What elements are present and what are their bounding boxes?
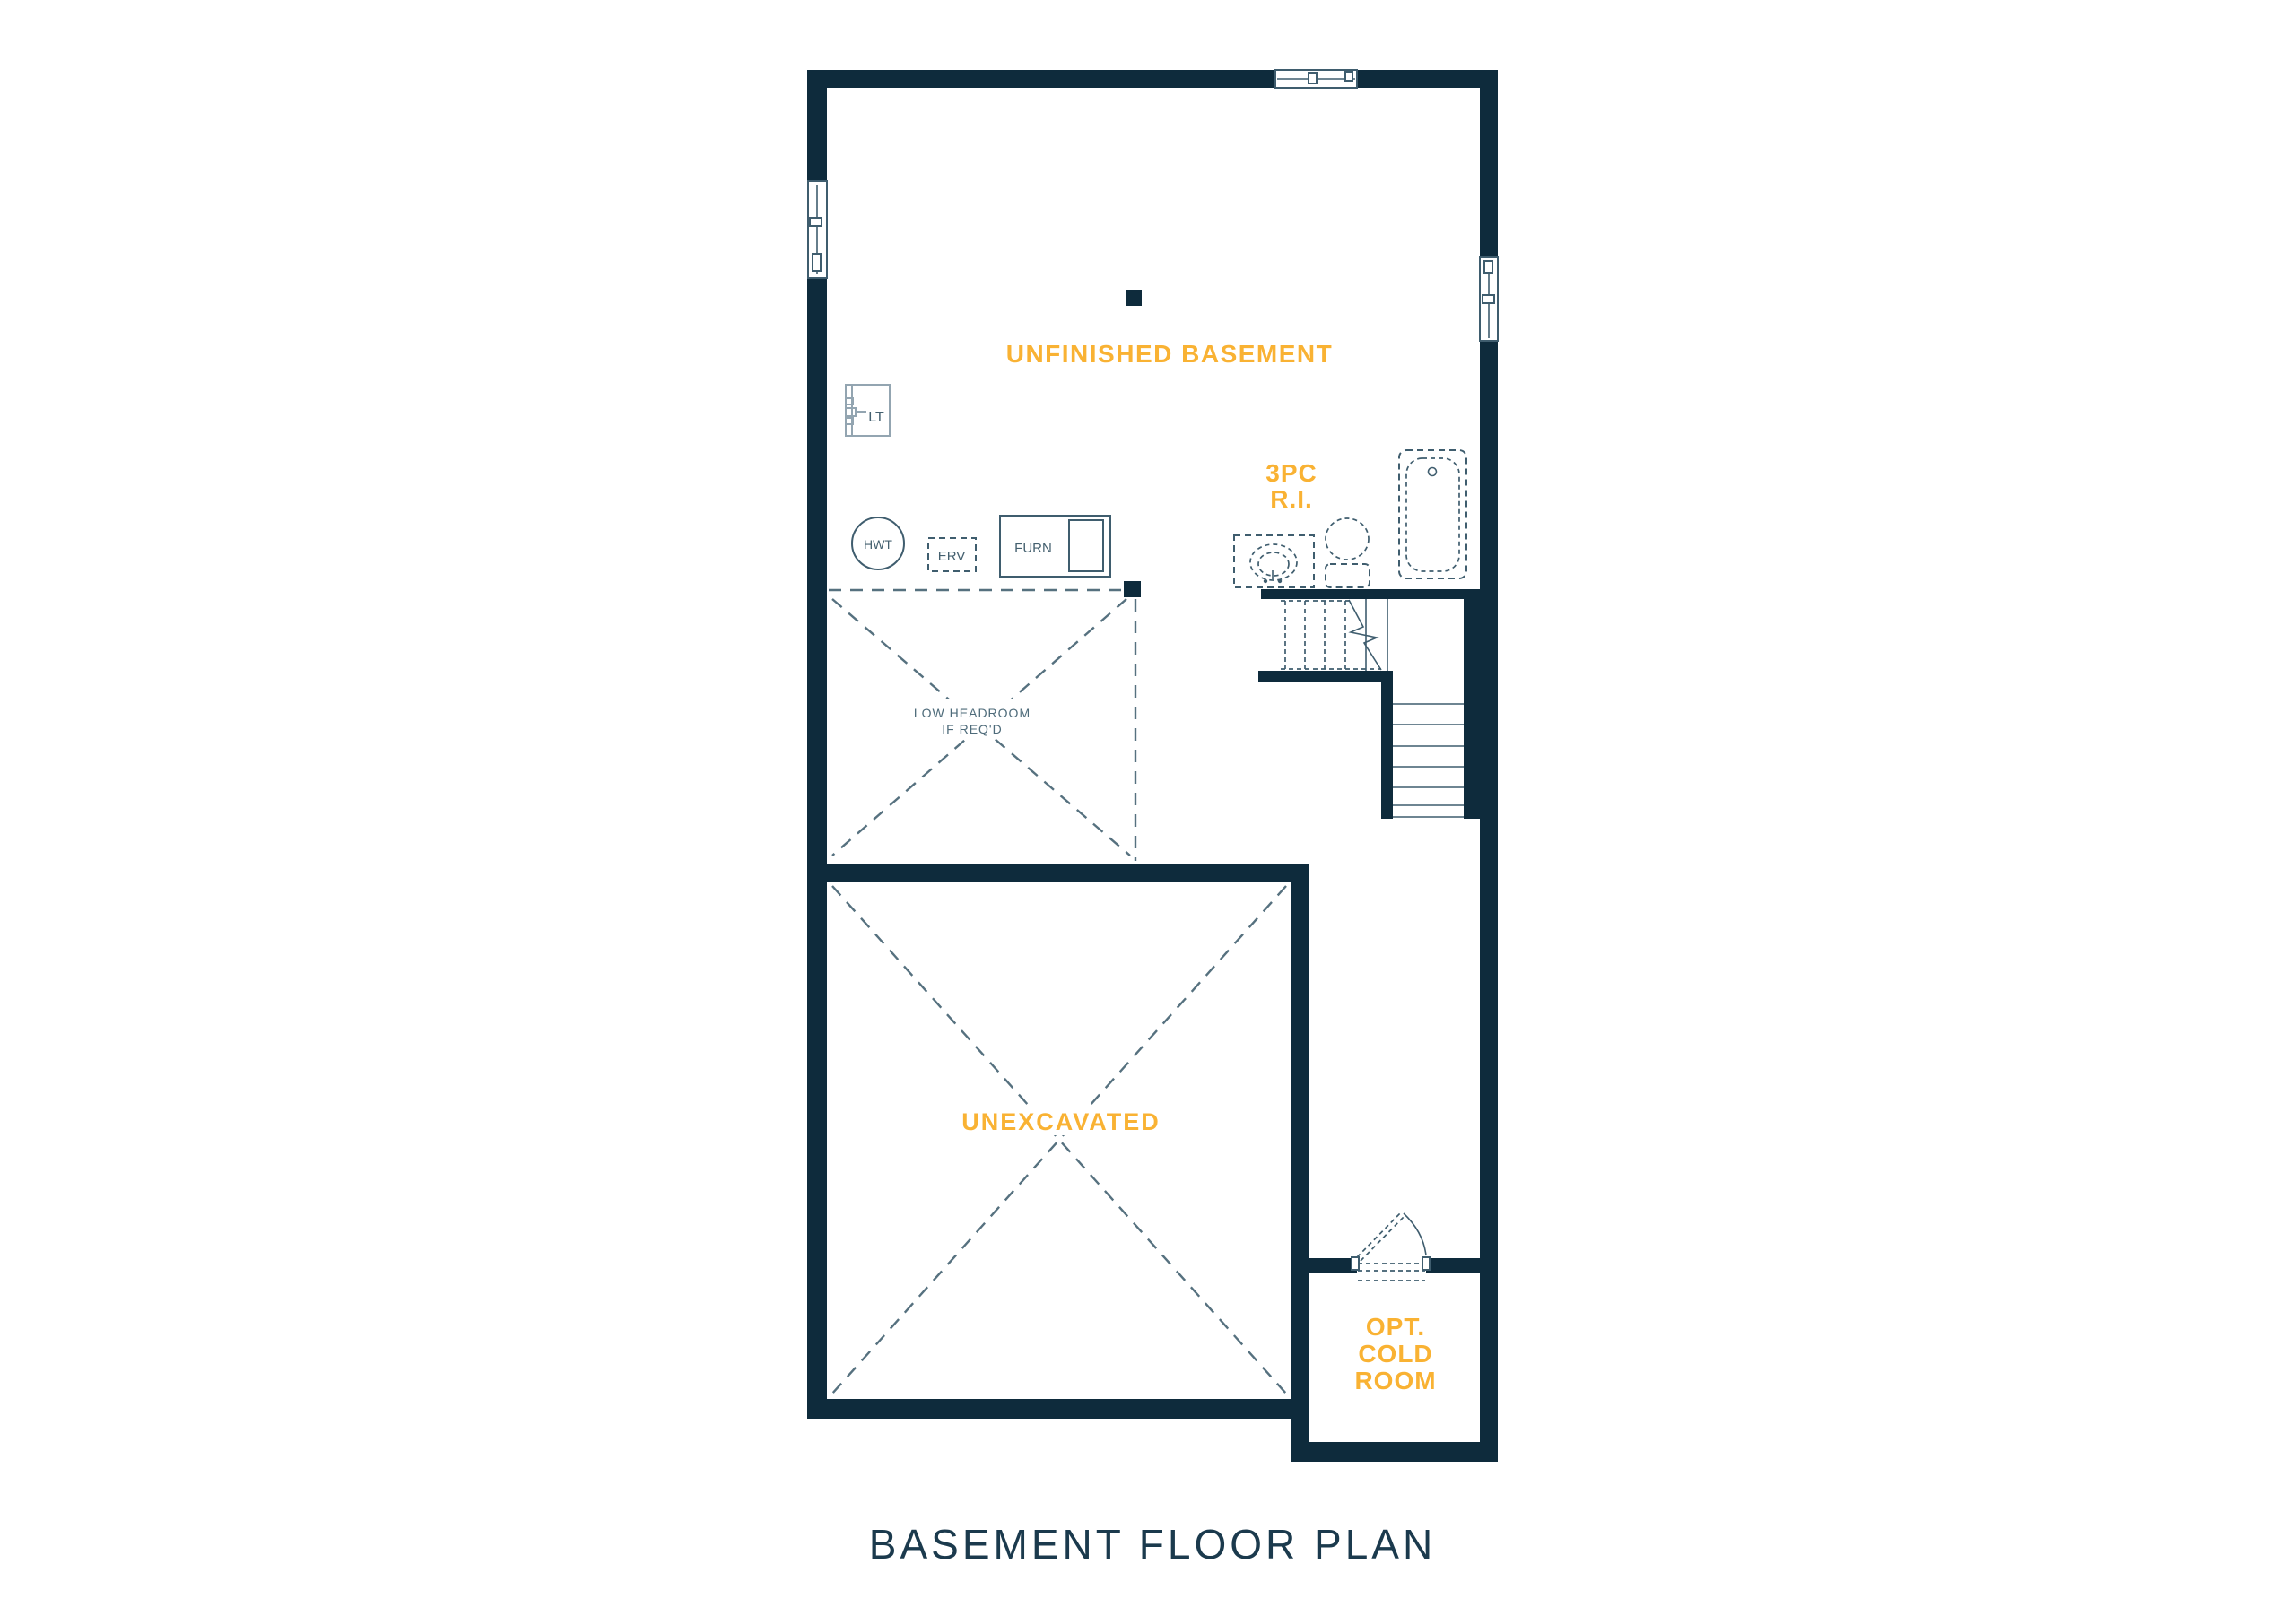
low-headroom-label-line1: LOW HEADROOM bbox=[914, 706, 1031, 720]
page-title: BASEMENT FLOOR PLAN bbox=[869, 1521, 1436, 1568]
left-wall-upper bbox=[807, 70, 827, 181]
lower-stair-treads bbox=[1393, 704, 1464, 817]
right-window-icon bbox=[1480, 257, 1498, 341]
corridor-left-wall bbox=[1291, 864, 1309, 1462]
floor-plan-svg: LOW HEADROOM IF REQ'D UNEXCAVATED LT HWT… bbox=[0, 0, 2296, 1607]
cold-room-top-wall-left bbox=[1309, 1258, 1357, 1273]
utilities: LT HWT ERV FURN bbox=[846, 385, 1110, 577]
unexcavated-area: UNEXCAVATED bbox=[832, 886, 1286, 1394]
hot-water-tank-icon: HWT bbox=[852, 517, 904, 569]
left-wall-lower bbox=[807, 278, 827, 1419]
floor-plan-page: LOW HEADROOM IF REQ'D UNEXCAVATED LT HWT… bbox=[0, 0, 2296, 1607]
cold-room-bottom-wall bbox=[1291, 1442, 1498, 1462]
toilet-icon bbox=[1326, 518, 1370, 587]
furnace-icon: FURN bbox=[1000, 516, 1110, 577]
stair-break-line bbox=[1349, 600, 1381, 670]
interior-walls bbox=[807, 290, 1480, 1462]
structural-post-upper bbox=[1126, 290, 1142, 306]
left-window-icon bbox=[808, 181, 827, 278]
bathroom-rough-in: 3PC R.I. bbox=[1234, 450, 1466, 587]
low-headroom-label-line2: IF REQ'D bbox=[942, 722, 1002, 736]
laundry-tub-icon: LT bbox=[846, 385, 890, 436]
laundry-tub-label: LT bbox=[868, 410, 884, 425]
cold-room-label-line1: OPT. bbox=[1366, 1313, 1425, 1341]
cold-room-door-icon bbox=[1352, 1212, 1430, 1281]
unexcavated-bottom-wall bbox=[807, 1399, 1309, 1419]
stairwell-wall-pad bbox=[1464, 599, 1480, 819]
erv-icon: ERV bbox=[928, 538, 976, 571]
stair-mid-wall bbox=[1258, 671, 1393, 682]
structural-post-lower bbox=[1124, 581, 1141, 597]
stairs bbox=[1281, 599, 1464, 817]
erv-label: ERV bbox=[938, 549, 966, 564]
sink-icon bbox=[1234, 535, 1314, 587]
low-headroom-area: LOW HEADROOM IF REQ'D bbox=[829, 590, 1135, 861]
bathroom-bottom-wall bbox=[1261, 589, 1480, 599]
stair-vertical-wall bbox=[1381, 671, 1393, 819]
furnace-label: FURN bbox=[1014, 541, 1052, 556]
unexcavated-label: UNEXCAVATED bbox=[961, 1108, 1161, 1135]
cold-room-label-line2: COLD bbox=[1358, 1340, 1432, 1368]
right-wall-lower bbox=[1480, 341, 1498, 1462]
right-wall-upper bbox=[1480, 70, 1498, 257]
exterior-walls bbox=[807, 70, 1498, 1462]
top-wall-left bbox=[807, 70, 1275, 88]
cold-room-label: OPT. COLD ROOM bbox=[1354, 1313, 1436, 1394]
unexcavated-top-wall bbox=[807, 864, 1309, 882]
cold-room-top-wall-right bbox=[1426, 1258, 1480, 1273]
bathtub-icon bbox=[1399, 450, 1466, 578]
top-wall-right bbox=[1357, 70, 1498, 88]
hot-water-tank-label: HWT bbox=[864, 537, 892, 552]
top-window-icon bbox=[1275, 70, 1357, 88]
unfinished-basement-label: UNFINISHED BASEMENT bbox=[1006, 340, 1334, 368]
bath-rough-in-label-line1: 3PC bbox=[1265, 459, 1317, 487]
bath-rough-in-label-line2: R.I. bbox=[1270, 485, 1313, 513]
cold-room-label-line3: ROOM bbox=[1354, 1367, 1436, 1394]
